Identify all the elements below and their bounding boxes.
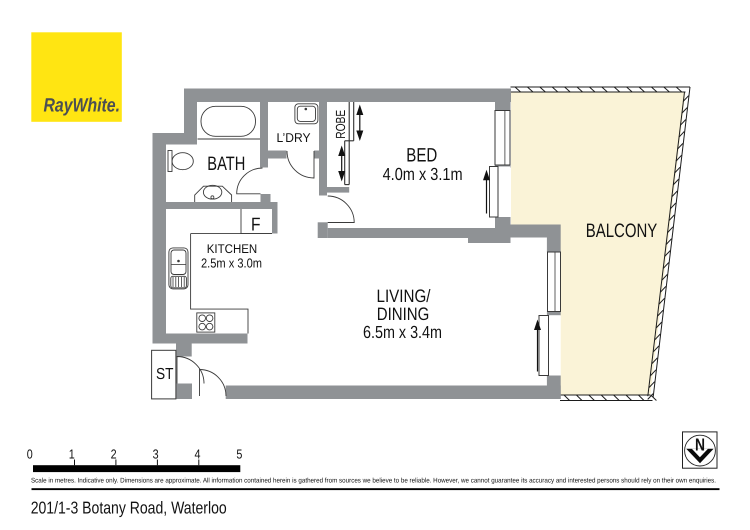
svg-text:2.5m x 3.0m: 2.5m x 3.0m [201,255,262,270]
svg-text:ROBE: ROBE [333,110,348,139]
svg-text:L’DRY: L’DRY [277,130,311,145]
svg-text:2: 2 [111,447,117,462]
svg-text:F: F [251,213,261,234]
svg-text:Scale in metres. Indicative on: Scale in metres. Indicative only. Dimens… [31,478,716,485]
svg-text:4: 4 [195,447,201,462]
svg-text:RayWhite.: RayWhite. [44,96,121,117]
svg-text:0: 0 [27,447,33,462]
svg-text:4.0m x 3.1m: 4.0m x 3.1m [383,164,463,184]
svg-text:6.5m x 3.4m: 6.5m x 3.4m [363,322,442,342]
svg-text:LIVING/: LIVING/ [377,286,431,306]
svg-text:3: 3 [153,447,159,462]
svg-text:BALCONY: BALCONY [586,220,658,242]
svg-text:201/1-3 Botany Road, Waterloo: 201/1-3 Botany Road, Waterloo [31,497,227,517]
svg-text:BATH: BATH [207,153,245,175]
svg-text:5: 5 [236,447,242,462]
svg-text:1: 1 [69,447,75,462]
svg-text:KITCHEN: KITCHEN [207,242,258,256]
svg-text:ST: ST [156,366,174,383]
svg-text:N: N [695,435,705,455]
